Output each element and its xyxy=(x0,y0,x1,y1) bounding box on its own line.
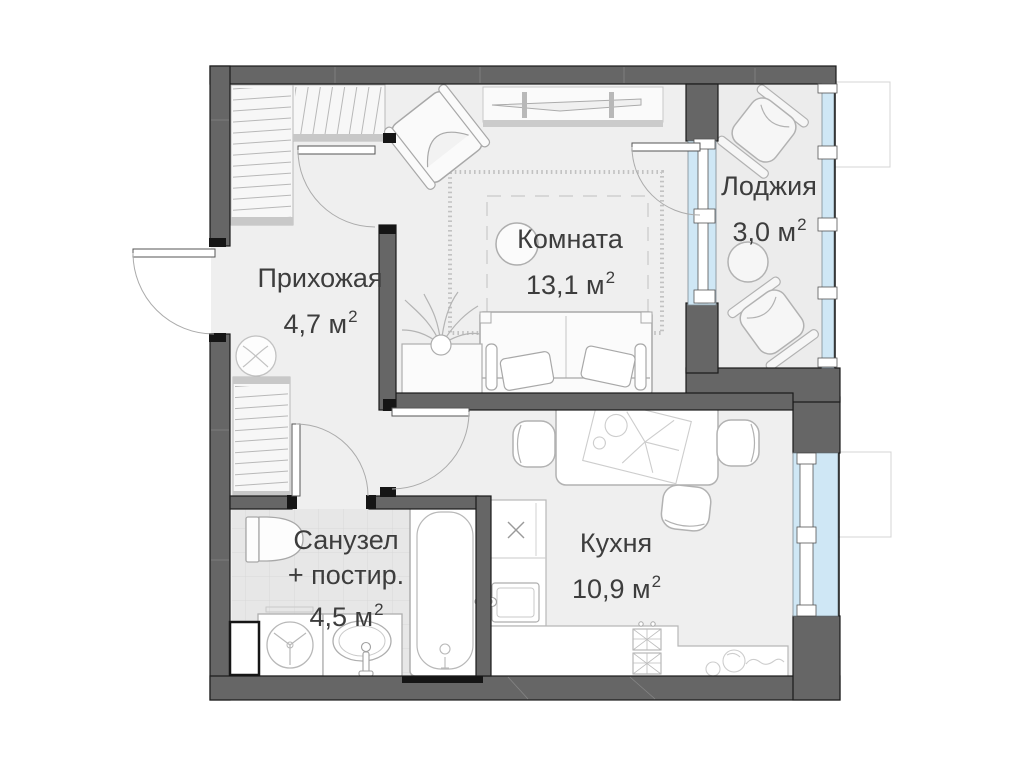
room-label-kitchen: Кухня 10,9 м2 xyxy=(572,523,660,609)
room-area: 10,9 м2 xyxy=(572,563,660,609)
room-label-hallway: Прихожая 4,7 м2 xyxy=(257,258,382,344)
chair-bottom xyxy=(660,484,712,533)
room-name: Санузел xyxy=(288,523,404,558)
vent-bar xyxy=(402,676,483,683)
room-name: Комната xyxy=(517,219,623,259)
wall-bathroom-top-left xyxy=(230,496,292,509)
room-area: 4,7 м2 xyxy=(257,298,382,344)
kitchen-sink xyxy=(492,583,539,622)
room-area: 4,5 м2 xyxy=(288,593,404,635)
wall-right-lower-pier xyxy=(793,616,840,700)
wall-bathroom-right xyxy=(476,496,491,676)
wall-loggia-pier-bottom xyxy=(686,303,718,373)
wall-bottom xyxy=(210,676,840,700)
entrance-door xyxy=(133,249,215,334)
wall-bathroom-top-right xyxy=(369,496,478,509)
wardrobe-left-lower xyxy=(233,377,290,498)
room-area: 3,0 м2 xyxy=(721,206,817,252)
room-label-room: Комната 13,1 м2 xyxy=(517,219,623,305)
wall-right-upper-pier xyxy=(793,397,840,453)
wall-top xyxy=(210,66,836,84)
sofa-bed xyxy=(480,312,652,394)
exterior-boxes xyxy=(834,82,891,537)
floor-plan-page: Прихожая 4,7 м2 Комната 13,1 м2 Лоджия 3… xyxy=(0,0,1024,768)
floor-plan-drawing xyxy=(0,0,1024,768)
bathtub xyxy=(410,505,480,676)
room-label-loggia: Лоджия 3,0 м2 xyxy=(721,166,817,252)
chair-left xyxy=(513,421,555,467)
console-table xyxy=(483,87,663,127)
dining-table xyxy=(556,398,718,485)
room-name-line2: + постир. xyxy=(288,558,404,593)
wall-left-lower xyxy=(210,334,230,700)
wall-room-kitchen xyxy=(383,393,793,410)
room-label-bathroom: Санузел + постир. 4,5 м2 xyxy=(288,523,404,635)
duct-shaft xyxy=(230,622,259,675)
wall-loggia-pier-top xyxy=(686,84,718,141)
window-room-loggia xyxy=(688,139,716,305)
room-name: Кухня xyxy=(572,523,660,563)
window-kitchen xyxy=(793,453,839,616)
room-area: 13,1 м2 xyxy=(517,259,623,305)
chair-right xyxy=(717,420,759,466)
wall-left-upper xyxy=(210,66,230,246)
room-name: Лоджия xyxy=(721,166,817,206)
room-name: Прихожая xyxy=(257,258,382,298)
